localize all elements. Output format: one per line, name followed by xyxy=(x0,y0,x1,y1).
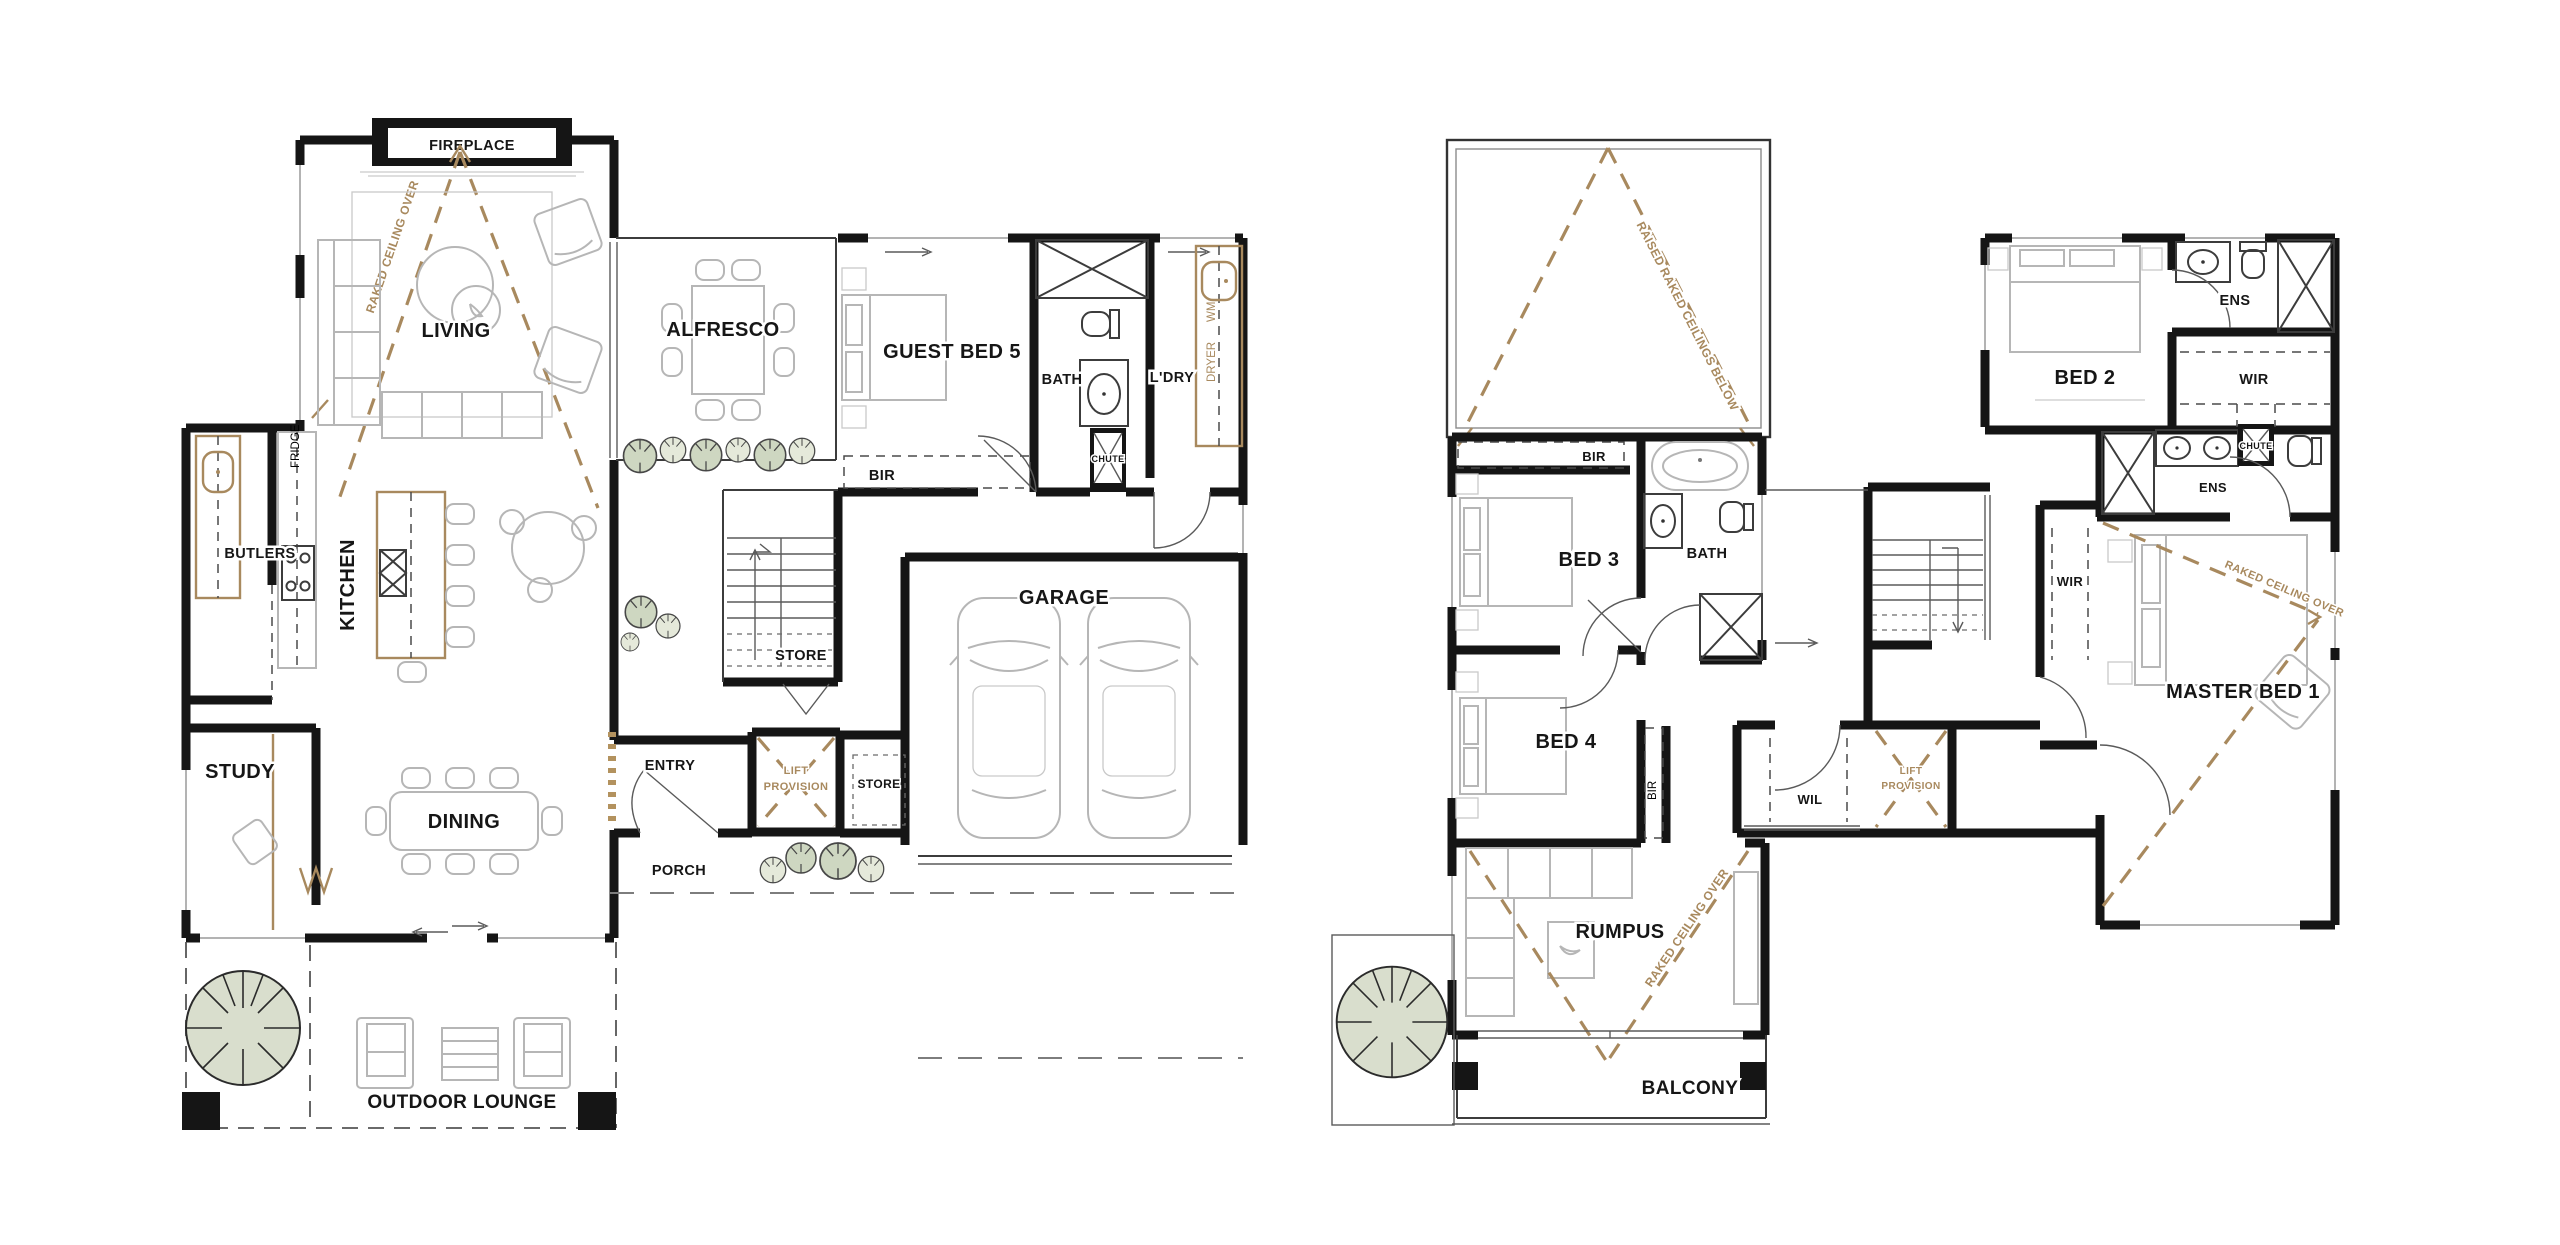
balcony: BALCONY xyxy=(1452,1031,1770,1124)
bush-icon xyxy=(690,439,722,471)
store-under-stairs-label: STORE xyxy=(775,648,827,664)
car-icon xyxy=(1080,598,1198,838)
guest-bed-label: GUEST BED 5 xyxy=(883,341,1021,363)
first-floor-plan: RAISED RAKED CEILINGS BELOW BIR BED 3 xyxy=(1332,140,2346,1125)
bush-icon xyxy=(760,857,786,883)
bathtub-icon xyxy=(1652,442,1748,490)
bush-icon xyxy=(625,596,657,628)
vanity-icon xyxy=(2176,242,2230,282)
butlers-pantry: BUTLERS xyxy=(196,436,296,598)
chair-icon xyxy=(366,807,386,835)
chair-icon xyxy=(446,768,474,788)
raked-master-label: RAKED CEILING OVER xyxy=(2223,559,2346,620)
stool-icon xyxy=(446,627,474,647)
chair-icon xyxy=(696,260,724,280)
island-bench xyxy=(377,492,474,682)
fireplace-label: FIREPLACE xyxy=(429,138,515,154)
ground-floor-plan: FIREPLACE RAKED CEILING OVER xyxy=(182,118,1243,1130)
dining: DINING xyxy=(366,732,612,874)
bed4-label: BED 4 xyxy=(1536,731,1597,753)
lift-provision-ff: LIFT PROVISION xyxy=(1876,731,1946,827)
bir-bed4-label: BIR xyxy=(1647,781,1659,800)
kitchen-label: KITCHEN xyxy=(337,539,359,631)
bed3-label: BED 3 xyxy=(1559,549,1620,571)
master-bedroom: RAKED CEILING OVER MASTER BED 1 xyxy=(2100,523,2346,906)
wir-master: WIR xyxy=(2040,528,2088,738)
alfresco: ALFRESCO xyxy=(616,238,836,460)
laundry: WM DRYER L'DRY xyxy=(1150,246,1242,446)
chair-icon xyxy=(732,260,760,280)
bush-icon xyxy=(660,437,686,463)
kitchen: FRIDGE KITCHEN xyxy=(278,424,596,682)
bir-label: BIR xyxy=(869,468,895,484)
bedroom-2: BED 2 xyxy=(1988,246,2162,400)
living-label: LIVING xyxy=(421,320,490,342)
lift-label: LIFT xyxy=(784,765,809,777)
bush-icon xyxy=(726,438,750,462)
lift-ff-label: LIFT xyxy=(1900,766,1923,777)
porch-label: PORCH xyxy=(652,863,706,879)
bush-icon xyxy=(621,633,639,651)
lift-provision-ff-label: PROVISION xyxy=(1881,781,1940,792)
chair-icon xyxy=(402,854,430,874)
chair-icon xyxy=(446,854,474,874)
garden-bushes xyxy=(621,437,815,651)
chair-icon xyxy=(696,400,724,420)
outdoor-lounge: OUTDOOR LOUNGE xyxy=(182,942,616,1130)
bush-icon xyxy=(820,843,856,879)
void-raked-area: RAISED RAKED CEILINGS BELOW xyxy=(1447,140,1770,446)
laundry-label: L'DRY xyxy=(1150,370,1194,386)
chair-icon xyxy=(542,807,562,835)
first-bathroom: BATH xyxy=(1644,442,1817,660)
first-windows xyxy=(1452,238,2335,980)
first-tree-court xyxy=(1332,935,1454,1125)
breakfast-table-icon xyxy=(500,510,596,602)
lift-provision-label: PROVISION xyxy=(764,781,829,793)
washing-machine-label: WM xyxy=(1206,302,1218,322)
tv-unit-icon xyxy=(1734,872,1758,1004)
outdoor-table-icon xyxy=(442,1028,498,1080)
rumpus: RAKED CEILING OVER RUMPUS xyxy=(1466,848,1758,1062)
bush-icon xyxy=(624,440,657,473)
robe-bir: BIR xyxy=(844,456,1030,488)
entry-label: ENTRY xyxy=(645,758,696,774)
car-icon xyxy=(950,598,1068,838)
butlers-label: BUTLERS xyxy=(224,546,295,562)
ens-master: CHUTE ENS xyxy=(2102,424,2321,517)
laundry-chute: CHUTE xyxy=(2238,424,2274,466)
balcony-label: BALCONY xyxy=(1642,1078,1739,1099)
study-label: STUDY xyxy=(205,761,275,783)
first-stairs xyxy=(1765,490,1990,640)
stool-icon xyxy=(446,586,474,606)
chair-icon xyxy=(774,348,794,376)
robe-bir: BIR xyxy=(1645,728,1663,838)
store-garage: STORE xyxy=(853,755,905,825)
bush-icon xyxy=(656,614,680,638)
porch: PORCH xyxy=(610,843,1243,1058)
wir-bed2-label: WIR xyxy=(2239,372,2269,388)
chute-label: CHUTE xyxy=(1092,454,1125,464)
stool-icon xyxy=(446,545,474,565)
stool-icon xyxy=(398,662,426,682)
wir-master-label: WIR xyxy=(2057,574,2084,589)
garage-label: GARAGE xyxy=(1019,587,1109,609)
dryer-label: DRYER xyxy=(1206,342,1218,382)
chair-icon xyxy=(732,400,760,420)
entry: ENTRY xyxy=(632,758,718,833)
wil-closet: WIL xyxy=(1744,725,1860,830)
toilet-icon xyxy=(2240,242,2266,278)
bathroom: BATH xyxy=(1036,240,1210,548)
rumpus-label: RUMPUS xyxy=(1575,921,1664,943)
bath-label: BATH xyxy=(1042,372,1083,388)
lift-provision: LIFT PROVISION xyxy=(758,738,834,826)
alfresco-label: ALFRESCO xyxy=(666,319,779,341)
bed-icon xyxy=(1988,246,2162,352)
bath-ff-label: BATH xyxy=(1687,546,1728,562)
laundry-chute: CHUTE xyxy=(1090,428,1126,492)
store-label: STORE xyxy=(857,777,900,791)
chair-icon xyxy=(490,854,518,874)
toilet-icon xyxy=(2288,436,2321,466)
garage: GARAGE xyxy=(918,587,1232,864)
outdoor-lounge-label: OUTDOOR LOUNGE xyxy=(367,1092,556,1113)
vanity-icon xyxy=(1644,494,1682,548)
bir-bed3-label: BIR xyxy=(1582,449,1606,464)
fridge-label: FRIDGE xyxy=(290,424,302,468)
armchair-icon xyxy=(532,197,603,267)
tree-icon xyxy=(1337,967,1448,1078)
toilet-icon xyxy=(1720,502,1753,532)
ens-master-label: ENS xyxy=(2199,480,2227,495)
bed-icon xyxy=(1456,474,1572,630)
chair-icon xyxy=(402,768,430,788)
bed2-label: BED 2 xyxy=(2055,367,2116,389)
bush-icon xyxy=(786,843,816,873)
wil-label: WIL xyxy=(1797,792,1822,807)
stool-icon xyxy=(446,504,474,524)
bed-icon xyxy=(2108,535,2307,685)
guest-bedroom: GUEST BED 5 BIR xyxy=(842,268,1036,492)
wir-bed2: WIR xyxy=(2180,352,2330,427)
raked-ceiling-label: RAKED CEILING OVER xyxy=(363,179,422,315)
bush-icon xyxy=(754,439,786,471)
vanity-icon xyxy=(2156,430,2238,466)
ens-bed2-label: ENS xyxy=(2219,293,2250,309)
outdoor-armchair-icon xyxy=(514,1018,570,1088)
bush-icon xyxy=(789,438,815,464)
fireplace: FIREPLACE xyxy=(360,118,584,176)
armchair-icon xyxy=(532,325,603,395)
floor-plan-canvas: FIREPLACE RAKED CEILING OVER xyxy=(0,0,2560,1245)
dining-label: DINING xyxy=(428,811,500,833)
outdoor-armchair-icon xyxy=(357,1018,413,1088)
bush-icon xyxy=(858,856,884,882)
robe-bir: BIR xyxy=(1458,442,1624,468)
first-walls xyxy=(1452,238,2335,1035)
living-room: LIVING xyxy=(318,192,604,438)
chair-icon xyxy=(662,348,682,376)
ens-bed2: ENS xyxy=(2172,240,2334,332)
tree-icon xyxy=(186,971,300,1085)
bedroom-4: BED 4 BIR xyxy=(1456,650,1663,838)
vanity-icon xyxy=(1080,360,1128,426)
toilet-icon xyxy=(1082,310,1119,338)
chute-ff-label: CHUTE xyxy=(2240,441,2273,451)
chair-icon xyxy=(490,768,518,788)
raised-raked-label: RAISED RAKED CEILINGS BELOW xyxy=(1634,219,1742,413)
master-bed-label: MASTER BED 1 xyxy=(2166,681,2320,703)
